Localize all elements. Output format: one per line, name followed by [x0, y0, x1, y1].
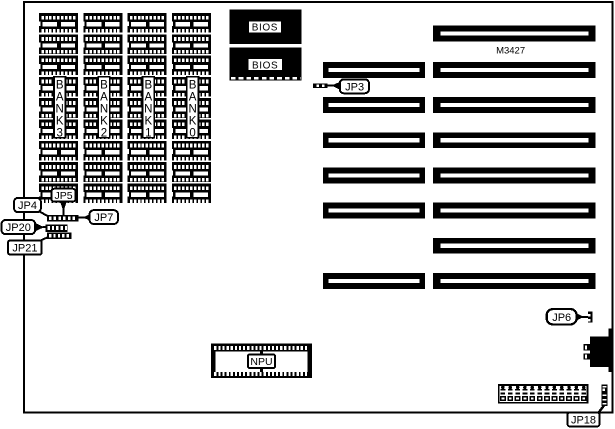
svg-text:JP21: JP21	[12, 243, 37, 255]
svg-text:B: B	[189, 79, 197, 91]
svg-text:NPU: NPU	[250, 356, 272, 368]
svg-text:0: 0	[189, 127, 195, 139]
svg-text:N: N	[144, 103, 152, 115]
svg-text:JP5: JP5	[54, 190, 72, 202]
svg-text:M3427: M3427	[496, 46, 525, 57]
svg-text:3: 3	[56, 127, 62, 139]
svg-text:K: K	[144, 115, 152, 127]
svg-text:BIOS: BIOS	[252, 60, 278, 71]
svg-text:1: 1	[145, 127, 151, 139]
svg-text:N: N	[100, 103, 108, 115]
svg-text:JP4: JP4	[18, 200, 37, 212]
svg-text:JP7: JP7	[94, 212, 113, 224]
svg-text:JP20: JP20	[6, 222, 31, 234]
svg-text:N: N	[56, 103, 64, 115]
svg-text:K: K	[189, 115, 197, 127]
svg-text:BIOS: BIOS	[252, 23, 278, 34]
svg-text:A: A	[56, 91, 64, 103]
svg-text:JP6: JP6	[552, 312, 571, 324]
svg-text:B: B	[144, 79, 152, 91]
svg-text:K: K	[100, 115, 108, 127]
svg-text:JP18: JP18	[571, 415, 596, 427]
svg-text:A: A	[100, 91, 108, 103]
svg-text:2: 2	[101, 127, 107, 139]
svg-text:A: A	[144, 91, 152, 103]
svg-text:K: K	[56, 115, 64, 127]
svg-text:N: N	[188, 103, 196, 115]
svg-text:JP3: JP3	[345, 81, 364, 93]
svg-text:B: B	[100, 79, 108, 91]
svg-text:B: B	[56, 79, 64, 91]
svg-text:A: A	[189, 91, 197, 103]
